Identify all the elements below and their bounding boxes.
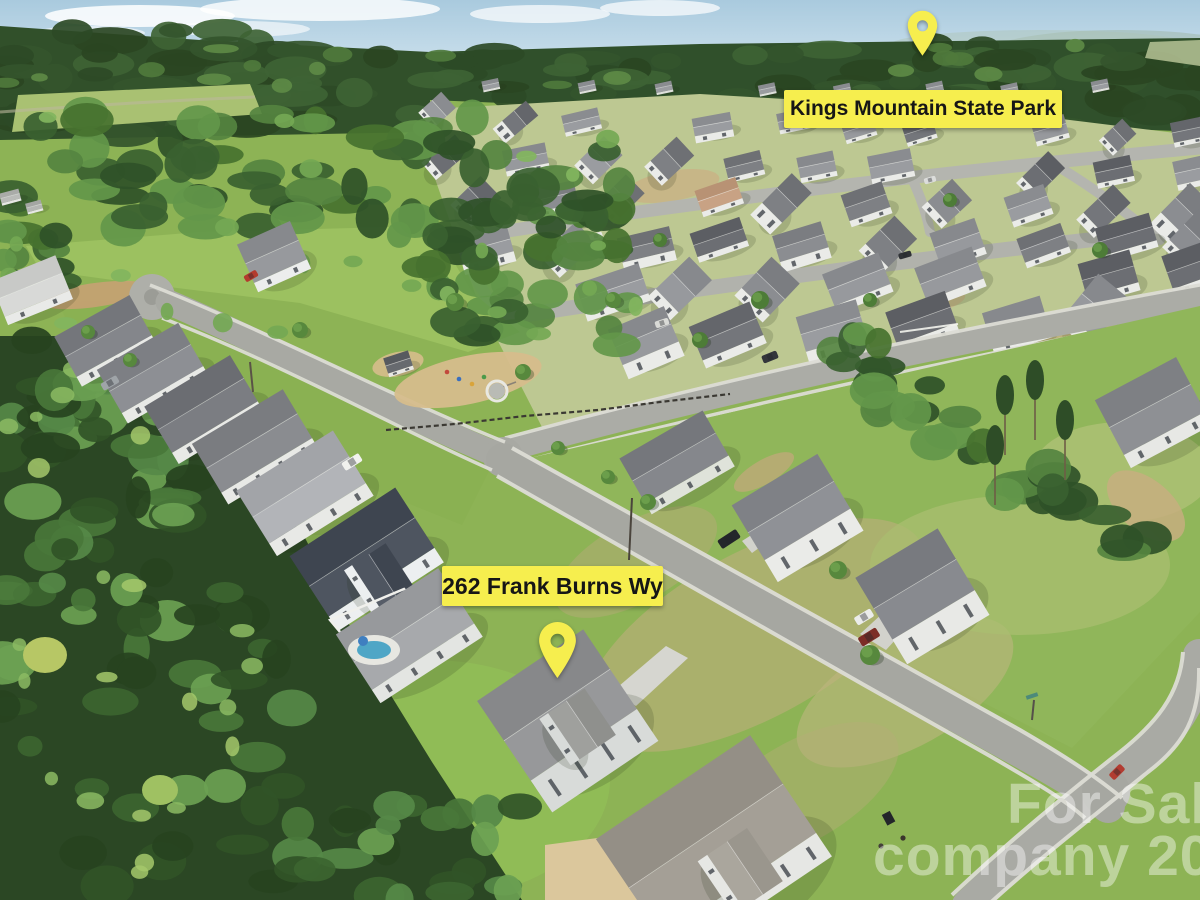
aerial-photo: Kings Mountain State Park 262 Frank Burn… (0, 0, 1200, 900)
address-label: 262 Frank Burns Wy (442, 566, 663, 606)
watermark: For Sale company 2023 (873, 778, 1200, 882)
address-map-pin-icon (538, 621, 577, 681)
watermark-line1: For Sale (1007, 778, 1200, 830)
watermark-line2: company 2023 (873, 830, 1200, 882)
park-map-pin-icon (907, 7, 938, 61)
aerial-scene (0, 0, 1200, 900)
park-label: Kings Mountain State Park (784, 90, 1062, 128)
